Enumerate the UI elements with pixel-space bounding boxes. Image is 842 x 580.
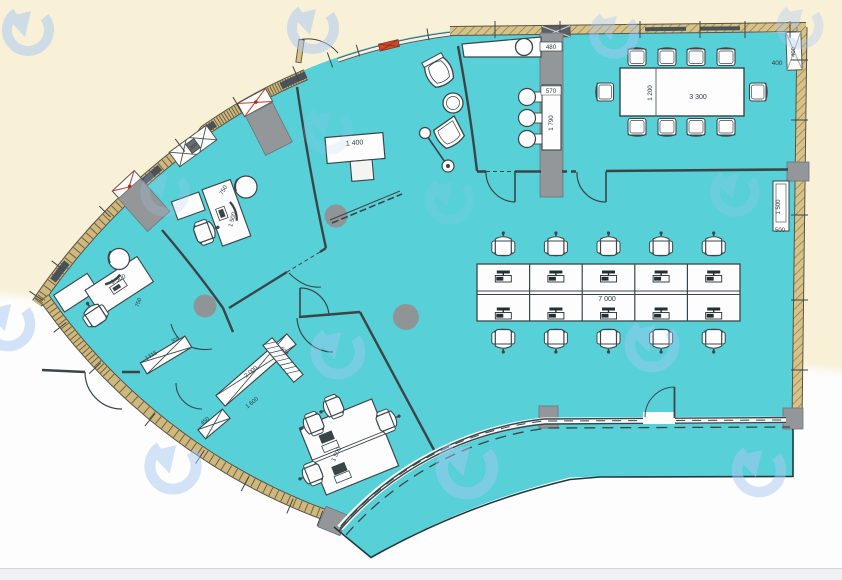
svg-text:400: 400: [772, 60, 783, 67]
svg-text:3 300: 3 300: [689, 94, 707, 101]
svg-text:570: 570: [546, 88, 557, 95]
svg-text:1 790: 1 790: [548, 115, 555, 131]
svg-text:480: 480: [546, 44, 557, 51]
svg-text:1 500: 1 500: [776, 199, 782, 215]
svg-text:7 000: 7 000: [598, 296, 616, 303]
svg-text:1 200: 1 200: [647, 85, 654, 101]
svg-text:500: 500: [775, 228, 786, 234]
